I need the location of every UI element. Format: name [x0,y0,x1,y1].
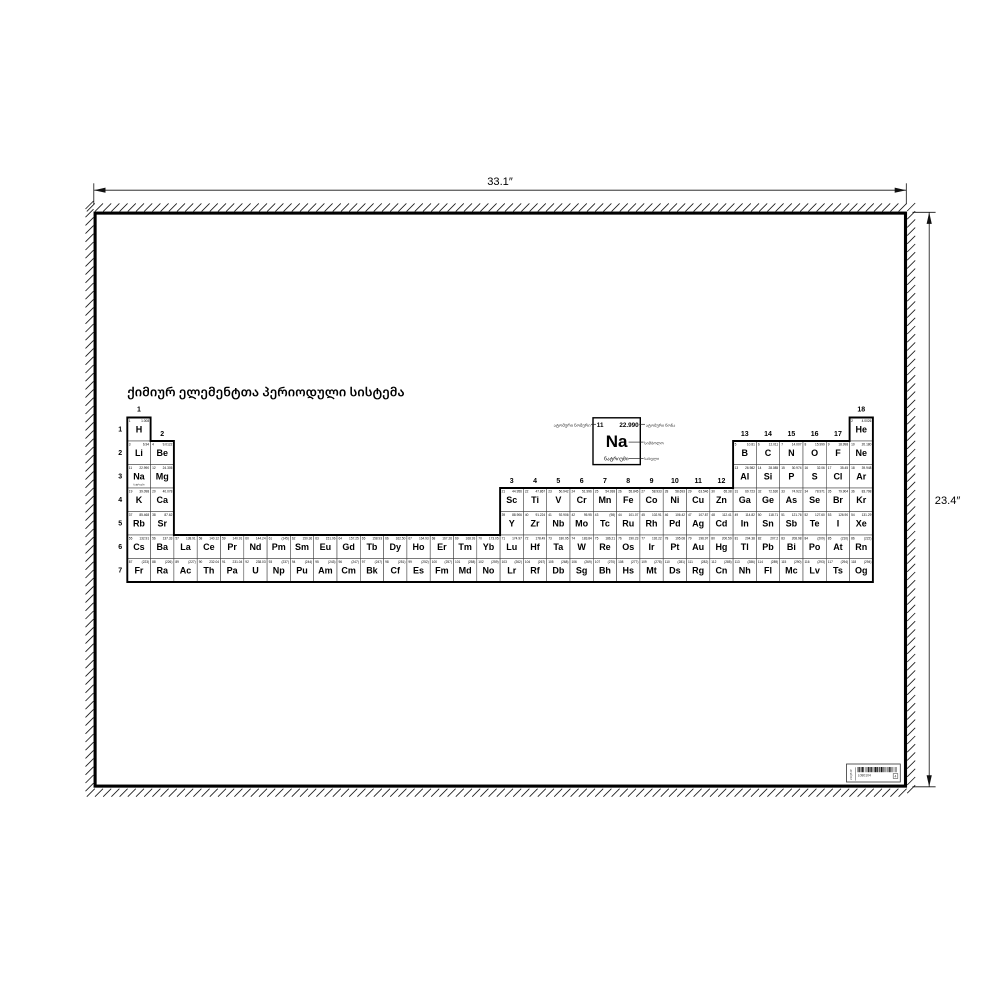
svg-text:58: 58 [199,537,203,541]
svg-text:83: 83 [781,537,785,541]
svg-text:39.098: 39.098 [139,490,149,494]
svg-text:15: 15 [781,466,785,470]
svg-text:Bk: Bk [366,566,378,576]
svg-text:1.008: 1.008 [141,419,149,423]
svg-text:Ir: Ir [649,542,656,552]
svg-text:O: O [811,448,818,458]
svg-text:48: 48 [711,513,715,517]
svg-text:U: U [252,566,259,576]
svg-text:Ra: Ra [156,566,168,576]
svg-text:164.93: 164.93 [419,537,429,541]
svg-text:LSQ84P: LSQ84P [849,769,853,780]
svg-text:Gd: Gd [342,542,355,552]
svg-text:78: 78 [665,537,669,541]
svg-text:36: 36 [851,490,855,494]
svg-text:4: 4 [533,478,537,485]
svg-text:40.078: 40.078 [163,490,173,494]
svg-text:116: 116 [805,560,810,564]
svg-text:No: No [482,566,494,576]
svg-text:Rn: Rn [855,542,867,552]
svg-text:Ne: Ne [855,448,867,458]
svg-text:231.04: 231.04 [233,560,243,564]
svg-text:(286): (286) [747,560,754,564]
svg-text:Nd: Nd [249,542,261,552]
svg-text:55: 55 [129,537,133,541]
svg-text:162.50: 162.50 [396,537,406,541]
svg-text:Co: Co [646,495,658,505]
svg-text:Tb: Tb [366,542,377,552]
svg-text:79.904: 79.904 [838,490,848,494]
svg-text:67: 67 [408,537,412,541]
svg-text:Ca: Ca [156,495,168,505]
svg-text:4: 4 [895,775,897,779]
svg-text:Pu: Pu [296,566,308,576]
svg-text:Sn: Sn [762,519,774,529]
svg-text:15: 15 [787,431,795,438]
svg-text:200.59: 200.59 [722,537,732,541]
svg-text:Li: Li [135,448,143,458]
svg-text:13: 13 [741,431,749,438]
svg-text:Db: Db [552,566,564,576]
svg-text:87.62: 87.62 [164,513,172,517]
svg-text:(98): (98) [609,513,615,517]
svg-text:(294): (294) [864,560,871,564]
svg-text:25: 25 [595,490,599,494]
svg-text:(258): (258) [468,560,475,564]
svg-text:93: 93 [269,560,273,564]
svg-text:73: 73 [548,537,552,541]
svg-text:(290): (290) [794,560,801,564]
svg-text:17: 17 [834,431,842,438]
svg-text:Ac: Ac [180,566,192,576]
svg-text:186.21: 186.21 [605,537,615,541]
svg-text:(243): (243) [328,560,335,564]
svg-text:Te: Te [810,519,820,529]
svg-text:180.95: 180.95 [559,537,569,541]
svg-text:12: 12 [718,478,726,485]
svg-text:106.42: 106.42 [675,513,685,517]
svg-text:54: 54 [851,513,855,517]
svg-text:K: K [136,495,143,505]
svg-text:Cl: Cl [833,472,842,482]
svg-text:118.71: 118.71 [769,513,779,517]
svg-text:196.97: 196.97 [699,537,709,541]
svg-text:30.974: 30.974 [792,466,802,470]
svg-text:Sg: Sg [576,566,588,576]
svg-text:F: F [835,448,841,458]
svg-text:(281): (281) [678,560,685,564]
svg-text:107: 107 [595,560,601,564]
svg-text:4.0026: 4.0026 [862,419,872,423]
svg-text:Rb: Rb [133,519,145,529]
svg-text:1: 1 [129,419,131,423]
svg-text:98: 98 [385,560,389,564]
svg-text:Xe: Xe [856,519,867,529]
svg-text:18: 18 [851,466,855,470]
svg-text:Tc: Tc [600,519,610,529]
svg-text:S: S [812,472,818,482]
svg-text:208.98: 208.98 [792,537,802,541]
svg-text:Am: Am [318,566,333,576]
svg-text:50: 50 [758,513,762,517]
svg-text:P: P [788,472,794,482]
svg-text:114.82: 114.82 [745,513,755,517]
svg-text:97: 97 [362,560,366,564]
svg-text:92.906: 92.906 [559,513,569,517]
svg-text:60: 60 [245,537,249,541]
svg-text:10.81: 10.81 [747,443,755,447]
svg-text:(269): (269) [584,560,591,564]
svg-text:Po: Po [809,542,821,552]
svg-text:Na: Na [606,432,628,451]
svg-text:37: 37 [129,513,133,517]
svg-text:144.24: 144.24 [256,537,266,541]
svg-text:65.38: 65.38 [724,490,732,494]
svg-text:14.007: 14.007 [792,443,802,447]
svg-text:Na: Na [133,472,145,482]
svg-text:71: 71 [502,537,506,541]
svg-text:137.33: 137.33 [163,537,173,541]
svg-text:16: 16 [805,466,809,470]
svg-text:24.305: 24.305 [163,466,173,470]
svg-text:1: 1 [118,427,122,434]
svg-text:64: 64 [339,537,343,541]
svg-text:140.91: 140.91 [233,537,243,541]
svg-text:Bh: Bh [599,566,611,576]
svg-text:Cs: Cs [133,542,145,552]
svg-text:6: 6 [580,478,584,485]
svg-text:5: 5 [735,443,737,447]
svg-text:C: C [765,448,772,458]
svg-text:Dy: Dy [389,542,401,552]
svg-text:Nb: Nb [552,519,564,529]
svg-text:(268): (268) [561,560,568,564]
svg-text:35: 35 [828,490,832,494]
svg-text:3: 3 [129,443,131,447]
svg-text:69.723: 69.723 [745,490,755,494]
svg-text:Au: Au [692,542,704,552]
svg-text:42: 42 [572,513,576,517]
svg-text:(244): (244) [305,560,312,564]
svg-text:26: 26 [618,490,622,494]
svg-text:Ta: Ta [553,542,564,552]
svg-text:Rh: Rh [646,519,658,529]
svg-text:(270): (270) [608,560,615,564]
svg-text:Eu: Eu [320,542,332,552]
svg-text:11: 11 [129,466,133,470]
svg-text:(210): (210) [841,537,848,541]
svg-text:79: 79 [688,537,692,541]
svg-text:183.84: 183.84 [582,537,592,541]
svg-text:40: 40 [525,513,529,517]
svg-text:11: 11 [694,478,702,485]
svg-text:Ds: Ds [669,566,681,576]
svg-text:44: 44 [618,513,622,517]
svg-text:101.07: 101.07 [629,513,639,517]
svg-text:(251): (251) [398,560,405,564]
svg-text:22.990: 22.990 [619,422,639,429]
svg-text:106: 106 [572,560,578,564]
svg-text:(293): (293) [817,560,824,564]
svg-text:28: 28 [665,490,669,494]
svg-text:70: 70 [478,537,482,541]
svg-text:11: 11 [597,422,604,429]
svg-text:76: 76 [618,537,622,541]
svg-text:4: 4 [152,443,154,447]
svg-text:Al: Al [740,472,749,482]
svg-text:12: 12 [152,466,156,470]
svg-text:(227): (227) [188,560,195,564]
svg-text:(294): (294) [841,560,848,564]
svg-text:7: 7 [781,443,783,447]
svg-text:29: 29 [688,490,692,494]
svg-text:Md: Md [459,566,472,576]
svg-text:Bi: Bi [787,542,796,552]
svg-text:167.26: 167.26 [442,537,452,541]
svg-text:24: 24 [572,490,576,494]
svg-text:20: 20 [152,490,156,494]
svg-text:Pa: Pa [227,566,239,576]
svg-text:75: 75 [595,537,599,541]
svg-text:85: 85 [828,537,832,541]
svg-text:168.93: 168.93 [466,537,476,541]
svg-text:195.08: 195.08 [675,537,685,541]
svg-text:138.91: 138.91 [186,537,196,541]
svg-text:Fe: Fe [623,495,634,505]
svg-text:Be: Be [156,448,168,458]
svg-text:18: 18 [857,407,865,414]
svg-text:Rf: Rf [530,566,540,576]
svg-text:Si: Si [764,472,773,482]
svg-text:Kr: Kr [856,495,866,505]
svg-text:Cn: Cn [715,566,727,576]
svg-text:Cm: Cm [341,566,356,576]
svg-text:49: 49 [735,513,739,517]
svg-text:118: 118 [851,560,856,564]
svg-text:74: 74 [572,537,576,541]
svg-text:178.49: 178.49 [535,537,545,541]
svg-text:6: 6 [758,443,760,447]
svg-text:46: 46 [665,513,669,517]
svg-text:72.630: 72.630 [768,490,778,494]
svg-text:(277): (277) [631,560,638,564]
svg-text:(247): (247) [351,560,358,564]
svg-text:Hs: Hs [622,566,634,576]
svg-text:103: 103 [502,560,508,564]
svg-text:41: 41 [548,513,552,517]
svg-text:95: 95 [315,560,319,564]
svg-text:6.94: 6.94 [143,443,149,447]
svg-text:(259): (259) [491,560,498,564]
svg-text:As: As [786,495,798,505]
svg-text:Pt: Pt [670,542,679,552]
svg-text:207.2: 207.2 [770,537,778,541]
svg-text:B: B [742,448,749,458]
svg-text:Sm: Sm [295,542,309,552]
svg-text:Mn: Mn [598,495,611,505]
svg-text:Fm: Fm [435,566,449,576]
svg-text:158.93: 158.93 [372,537,382,541]
svg-text:173.05: 173.05 [489,537,499,541]
svg-text:50.942: 50.942 [559,490,569,494]
svg-text:Tm: Tm [458,542,472,552]
svg-text:W: W [577,542,586,552]
svg-text:9: 9 [828,443,830,447]
svg-text:39: 39 [502,513,506,517]
svg-text:26.982: 26.982 [745,466,755,470]
svg-text:33: 33 [781,490,785,494]
svg-text:110: 110 [665,560,670,564]
svg-text:54.938: 54.938 [605,490,615,494]
svg-text:126.90: 126.90 [838,513,848,517]
svg-text:38: 38 [152,513,156,517]
svg-text:Mc: Mc [785,566,798,576]
svg-text:Hg: Hg [715,542,727,552]
svg-text:Fr: Fr [134,566,143,576]
svg-text:Cf: Cf [391,566,401,576]
svg-text:I: I [837,519,840,529]
svg-text:18.998: 18.998 [838,443,848,447]
svg-text:Cr: Cr [577,495,587,505]
svg-text:Zn: Zn [716,495,727,505]
svg-text:Sc: Sc [506,495,517,505]
svg-text:Ru: Ru [622,519,634,529]
svg-text:174.97: 174.97 [512,537,522,541]
svg-text:87: 87 [129,560,133,564]
svg-text:99: 99 [408,560,412,564]
svg-text:(223): (223) [142,560,149,564]
svg-text:Ti: Ti [531,495,539,505]
svg-text:56: 56 [152,537,156,541]
svg-text:(262): (262) [514,560,521,564]
svg-text:101: 101 [455,560,461,564]
svg-text:2: 2 [118,450,122,457]
svg-text:92: 92 [245,560,249,564]
svg-text:7: 7 [603,478,607,485]
svg-text:Ag: Ag [692,519,704,529]
svg-text:91.224: 91.224 [535,513,545,517]
svg-text:83.798: 83.798 [862,490,872,494]
svg-text:Ni: Ni [670,495,679,505]
svg-text:86: 86 [851,537,855,541]
svg-text:94: 94 [292,560,296,564]
svg-text:232.04: 232.04 [209,560,219,564]
svg-text:(285): (285) [724,560,731,564]
svg-text:Rg: Rg [692,566,704,576]
svg-text:22.990: 22.990 [139,466,149,470]
svg-text:57: 57 [175,537,179,541]
svg-text:72: 72 [525,537,529,541]
svg-text:Lu: Lu [506,542,517,552]
svg-text:131.29: 131.29 [862,513,872,517]
svg-text:2: 2 [851,419,853,423]
svg-text:81: 81 [735,537,739,541]
svg-text:238.03: 238.03 [256,560,266,564]
svg-text:30: 30 [711,490,715,494]
svg-text:96: 96 [339,560,343,564]
svg-text:8: 8 [626,478,630,485]
svg-text:H: H [136,425,143,435]
svg-text:82: 82 [758,537,762,541]
svg-text:107.87: 107.87 [699,513,709,517]
svg-text:Ce: Ce [203,542,215,552]
svg-text:4: 4 [118,497,122,504]
svg-text:140.12: 140.12 [209,537,219,541]
svg-text:105: 105 [548,560,554,564]
svg-text:Br: Br [833,495,843,505]
svg-text:150.36: 150.36 [302,537,312,541]
svg-text:L080104: L080104 [858,774,871,778]
svg-text:(252): (252) [421,560,428,564]
svg-text:Pb: Pb [762,542,774,552]
svg-text:Ge: Ge [762,495,774,505]
svg-text:80: 80 [711,537,715,541]
svg-text:Mg: Mg [156,472,169,482]
svg-text:17: 17 [828,466,832,470]
svg-text:91: 91 [222,560,226,564]
svg-text:Pr: Pr [227,542,237,552]
svg-text:102.91: 102.91 [652,513,662,517]
svg-text:10: 10 [851,443,855,447]
svg-text:5: 5 [556,478,560,485]
svg-text:19: 19 [129,490,133,494]
svg-text:Ho: Ho [413,542,425,552]
svg-text:Re: Re [599,542,611,552]
svg-text:(222): (222) [864,537,871,541]
svg-text:112.41: 112.41 [722,513,732,517]
svg-text:Se: Se [809,495,820,505]
svg-text:66: 66 [385,537,389,541]
svg-text:Lv: Lv [809,566,820,576]
svg-text:Mo: Mo [575,519,588,529]
svg-text:100: 100 [432,560,438,564]
svg-text:62: 62 [292,537,296,541]
svg-text:132.91: 132.91 [139,537,149,541]
svg-text:Cd: Cd [715,519,727,529]
svg-text:16: 16 [811,431,819,438]
svg-text:Ar: Ar [856,472,866,482]
svg-text:Yb: Yb [483,542,495,552]
svg-text:102: 102 [478,560,484,564]
svg-text:108: 108 [618,560,624,564]
svg-text:Pd: Pd [669,519,681,529]
svg-text:3: 3 [510,478,514,485]
svg-text:89: 89 [175,560,179,564]
svg-text:47.867: 47.867 [535,490,545,494]
svg-text:61: 61 [269,537,273,541]
svg-text:Es: Es [413,566,424,576]
svg-text:In: In [741,519,749,529]
svg-text:20.180: 20.180 [862,443,872,447]
svg-text:9.0122: 9.0122 [163,443,173,447]
svg-text:28.085: 28.085 [768,466,778,470]
svg-text:84: 84 [805,537,809,541]
svg-text:(237): (237) [281,560,288,564]
svg-text:Zr: Zr [531,519,540,529]
svg-text:14: 14 [758,466,762,470]
svg-text:Lr: Lr [507,566,516,576]
svg-text:114: 114 [758,560,763,564]
svg-text:78.971: 78.971 [815,490,825,494]
svg-text:95.95: 95.95 [584,513,592,517]
svg-text:5: 5 [118,521,122,528]
svg-text:43: 43 [595,513,599,517]
svg-text:Th: Th [203,566,214,576]
svg-text:157.25: 157.25 [349,537,359,541]
svg-text:127.60: 127.60 [815,513,825,517]
svg-text:Nh: Nh [739,566,751,576]
svg-text:(278): (278) [654,560,661,564]
